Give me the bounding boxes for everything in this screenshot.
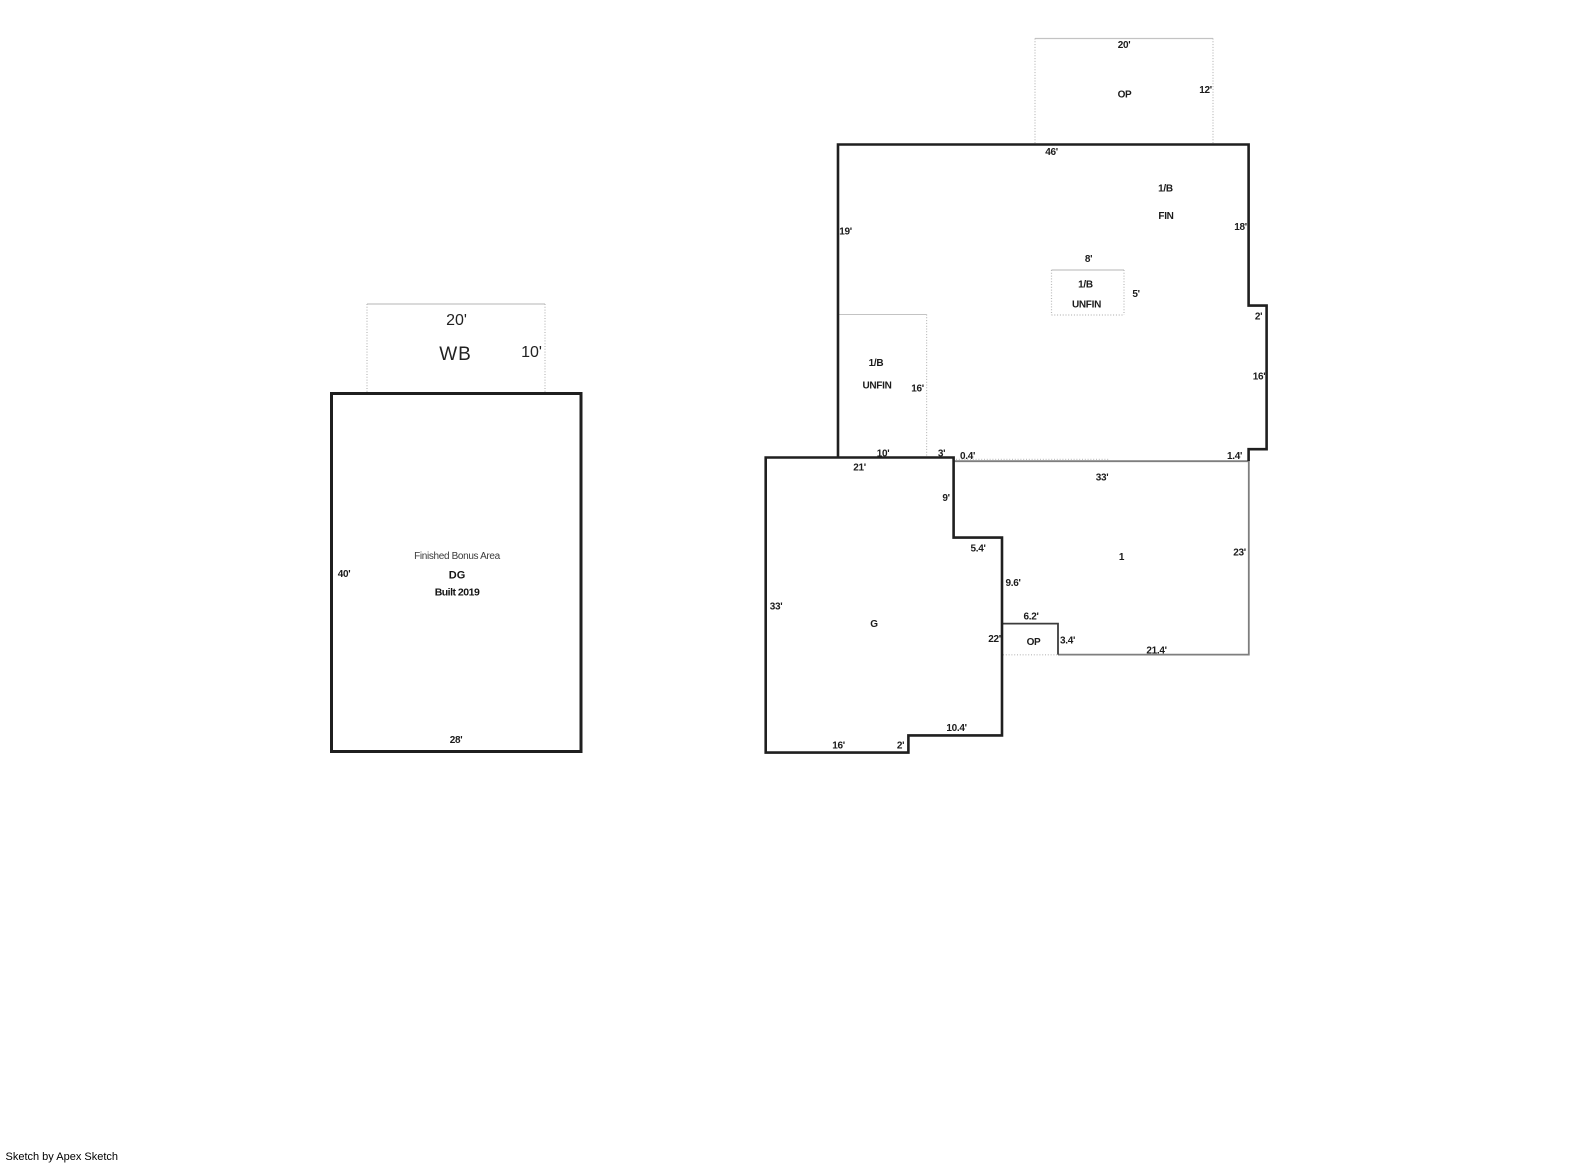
svg-text:UNFIN: UNFIN	[862, 381, 891, 392]
svg-text:DG: DG	[449, 570, 466, 582]
svg-text:Sketch by Apex Sketch: Sketch by Apex Sketch	[6, 1151, 119, 1163]
svg-text:16': 16'	[911, 384, 924, 395]
svg-text:5': 5'	[1132, 289, 1139, 300]
svg-text:5.4': 5.4'	[970, 544, 985, 555]
svg-text:16': 16'	[1253, 372, 1266, 383]
svg-text:0.4': 0.4'	[960, 451, 975, 462]
svg-text:G: G	[870, 619, 878, 630]
svg-text:33': 33'	[770, 602, 783, 613]
svg-text:1/B: 1/B	[1078, 280, 1093, 291]
svg-text:OP: OP	[1027, 637, 1041, 648]
svg-text:FIN: FIN	[1158, 211, 1173, 222]
svg-text:UNFIN: UNFIN	[1072, 300, 1101, 311]
svg-text:9': 9'	[942, 493, 949, 504]
svg-text:1: 1	[1119, 552, 1125, 563]
svg-text:1.4': 1.4'	[1227, 451, 1242, 462]
svg-text:22': 22'	[988, 634, 1001, 645]
svg-text:9.6': 9.6'	[1005, 578, 1020, 589]
svg-text:19': 19'	[839, 227, 852, 238]
svg-text:1/B: 1/B	[1158, 184, 1173, 195]
svg-text:WB: WB	[439, 344, 472, 365]
svg-text:8': 8'	[1085, 254, 1092, 265]
svg-text:10': 10'	[521, 344, 542, 361]
svg-text:16': 16'	[832, 741, 845, 752]
svg-text:2': 2'	[1255, 312, 1262, 323]
svg-text:3.4': 3.4'	[1060, 636, 1075, 647]
svg-text:20': 20'	[446, 312, 467, 329]
svg-text:Built 2019: Built 2019	[435, 587, 480, 599]
svg-text:OP: OP	[1118, 90, 1132, 101]
svg-text:21.4': 21.4'	[1146, 646, 1166, 657]
svg-text:Finished Bonus Area: Finished Bonus Area	[414, 551, 500, 562]
svg-text:23': 23'	[1233, 548, 1246, 559]
svg-text:6.2': 6.2'	[1023, 612, 1038, 623]
svg-text:21': 21'	[853, 463, 866, 474]
svg-text:12': 12'	[1199, 85, 1212, 96]
svg-text:2': 2'	[897, 741, 904, 752]
svg-text:18': 18'	[1234, 222, 1247, 233]
svg-text:40': 40'	[338, 569, 351, 580]
svg-text:46': 46'	[1045, 147, 1058, 158]
svg-text:28': 28'	[450, 735, 463, 746]
svg-text:20': 20'	[1118, 40, 1131, 51]
svg-text:33': 33'	[1096, 473, 1109, 484]
svg-text:10.4': 10.4'	[946, 723, 966, 734]
svg-text:1/B: 1/B	[869, 358, 884, 369]
